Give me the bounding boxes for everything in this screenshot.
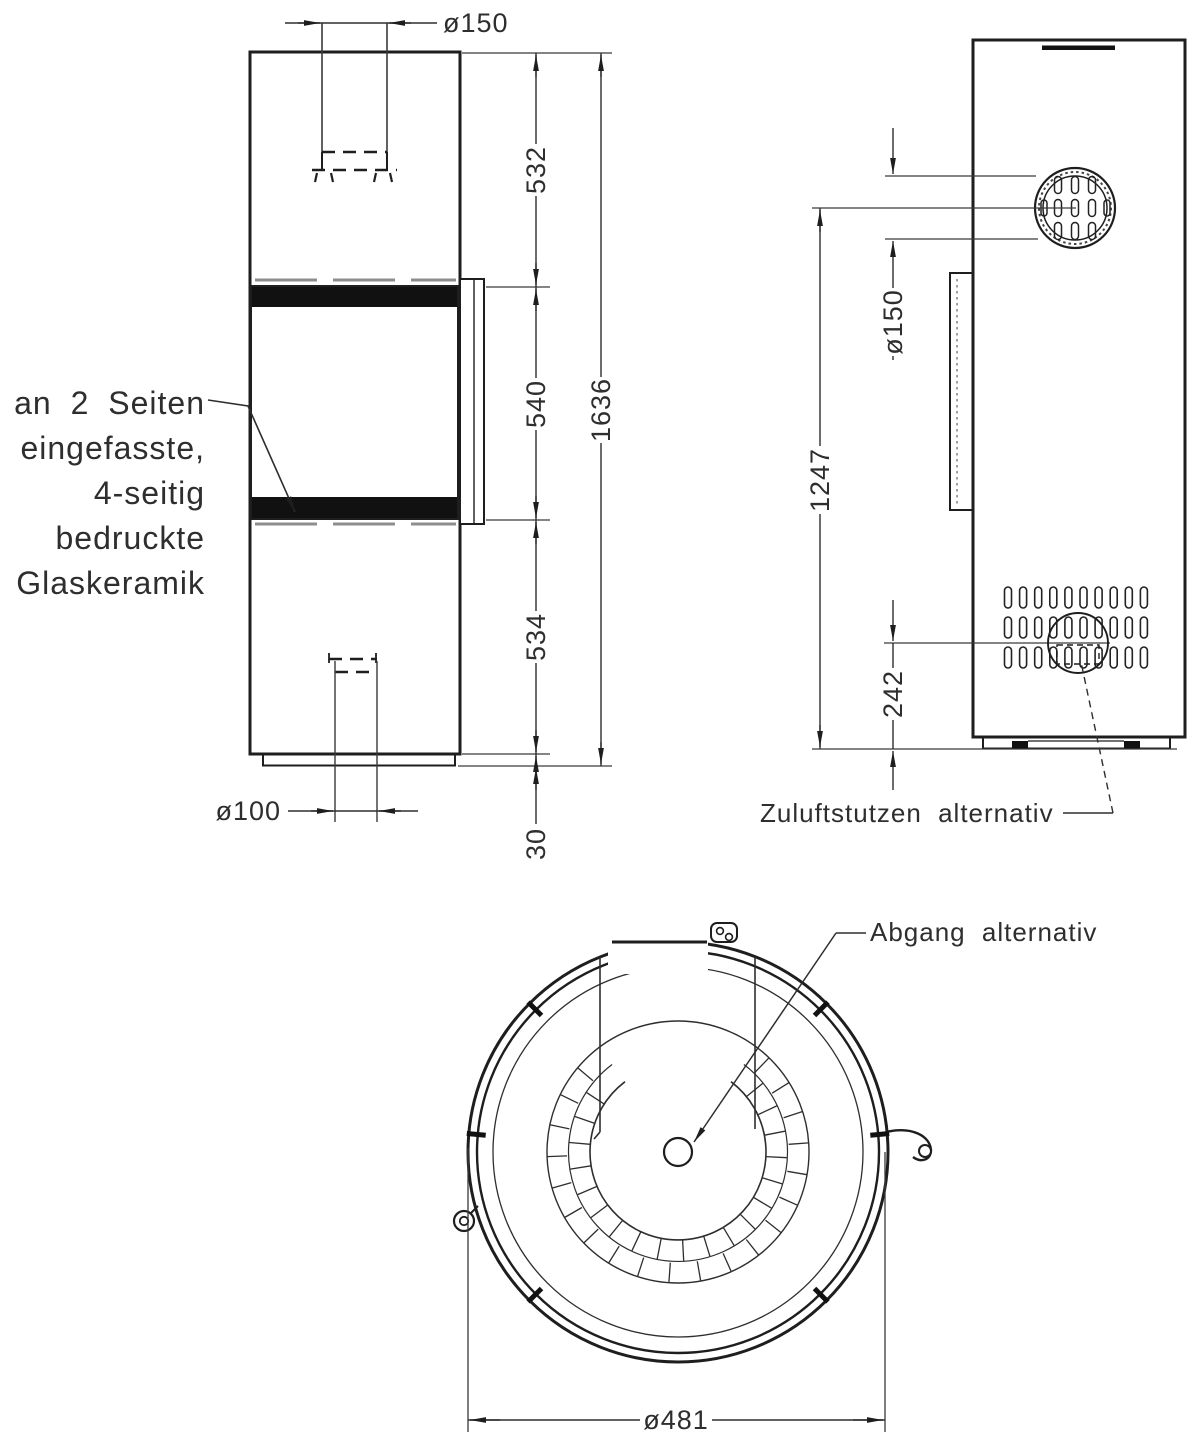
dim-bottom-inlet-dia: ø100 [215,796,281,826]
glass-note-line-2: eingefasste, [20,430,205,466]
flue-outlet-circle [664,1138,692,1166]
dim-height-to-flue: 1247 [805,448,835,512]
side-dim-flue-height: 1247 [805,208,835,749]
glass-note-line-1: an 2 Seiten [14,385,205,421]
glass-note-text: an 2 Seiten eingefasste, 4-seitig bedruc… [14,385,205,601]
front-view: 532 540 534 30 1636 ø150 ø100 [14,8,616,864]
technical-drawing-page: 532 540 534 30 1636 ø150 ø100 [0,0,1200,1449]
hinge-knob [454,1206,478,1231]
door-handle [886,1130,931,1160]
dim-lower-section: 534 [521,613,551,661]
front-plinth [263,754,455,766]
front-window [251,279,484,524]
front-body-outline [250,52,460,754]
glass-bottom-print-band [251,497,458,519]
side-dim-inlet-height: 242 [878,600,908,790]
side-view: ø150 1247 242 Zu [760,40,1185,828]
side-dim-flue: ø150 [812,128,1076,360]
dim-side-flue-dia: ø150 [878,289,908,355]
dim-body-diameter: ø481 [643,1405,709,1435]
side-glass-edge [950,273,973,510]
side-plinth [983,737,1170,749]
front-side-glass-panel [460,279,484,524]
dim-top-pipe-dia: ø150 [443,8,509,38]
flue-outlet-label: Abgang alternativ [870,917,1097,947]
glass-note-line-5: Glaskeramik [16,565,205,601]
air-inlet-label: Zuluftstutzen alternativ [760,798,1054,828]
front-dim-chain: 532 540 534 30 [521,53,551,864]
glass-top-print-band [251,286,458,307]
side-air-grille [884,587,1147,813]
front-bottom-inlet-pipe [329,653,377,822]
glass-note-line-4: bedruckte [55,520,205,556]
side-top-slot [1042,46,1115,51]
dim-window-height: 540 [521,380,551,428]
front-dim-total: 1636 [586,53,616,766]
front-dim-pipe: ø150 [285,8,509,38]
dim-upper-section: 532 [521,146,551,194]
front-flue-pipe [312,23,397,182]
dim-plinth-height: 30 [521,828,551,860]
stove-drawing-svg: 532 540 534 30 1636 ø150 ø100 [0,0,1200,1449]
dim-inlet-height: 242 [878,670,908,718]
top-view: Abgang alternativ ø481 [454,917,1097,1435]
dim-total-height: 1636 [586,378,616,442]
front-dim-inlet: ø100 [215,796,418,826]
glass-note-line-3: 4-seitig [94,475,205,511]
top-latch-clip [711,923,737,942]
top-firebox-walls [594,957,755,1139]
